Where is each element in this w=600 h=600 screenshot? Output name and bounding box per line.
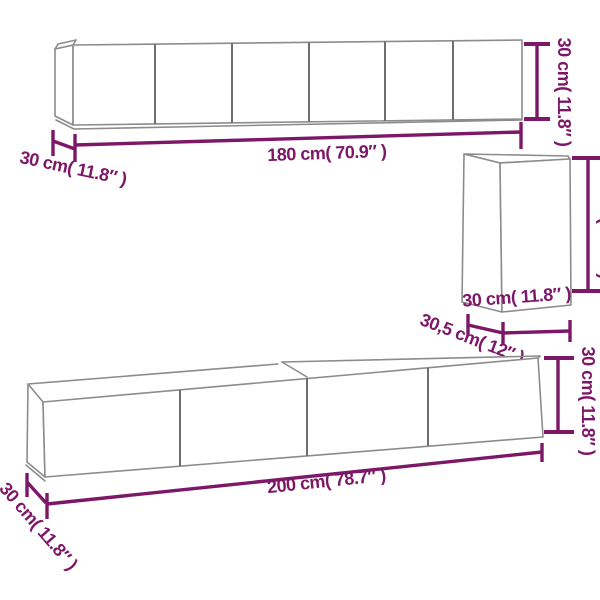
tv-bench [26,356,543,481]
side-width-line [503,331,570,333]
top-cabinet-side-face [55,45,73,125]
top-depth-line [53,141,75,149]
bench-height-label: 30 cm( 11.8″ ) [578,347,598,456]
bench-width-label: 200 cm( 78.7″ ) [266,465,387,497]
diagram-canvas: 30 cm( 11.8″ ) 180 cm( 70.9″ ) 30 cm( 11… [0,0,600,600]
bench-top-seam [282,362,307,377]
top-cabinet-height-label: 30 cm( 11.8″ ) [554,38,574,147]
top-cabinet-width-label: 180 cm( 70.9″ ) [267,141,387,165]
top-wall-cabinet [55,40,522,129]
bench-depth-label: 30 cm( 11.8″ ) [0,478,82,574]
bench-top-back-edge-left [28,364,278,384]
side-cabinet-height-label: 60 cm( 23.6″ ) [596,169,600,279]
bench-side-face [27,384,45,477]
top-cabinet-front-face [73,40,522,125]
furniture-dimension-diagram: 30 cm( 11.8″ ) 180 cm( 70.9″ ) 30 cm( 11… [0,0,600,600]
